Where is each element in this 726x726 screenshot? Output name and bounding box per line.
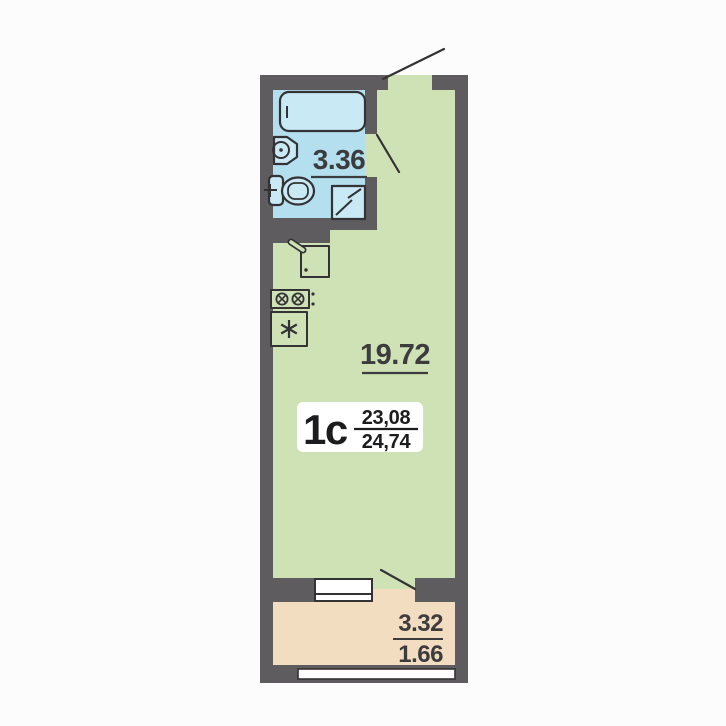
shower-icon xyxy=(332,186,365,219)
fridge-icon xyxy=(271,312,307,346)
wall-top xyxy=(260,75,388,90)
bathtub-outline xyxy=(280,92,365,131)
unit-area-reduced: 24,74 xyxy=(362,431,412,453)
balcony-reduced-area-label: 1.66 xyxy=(398,641,443,668)
entrance-opening-floor xyxy=(388,75,432,90)
balcony-door-opening-room-side xyxy=(373,578,415,589)
living-area-label: 19.72 xyxy=(360,339,430,371)
unit-type-label: 1с xyxy=(303,406,348,453)
unit-label-card: 1с 23,08 24,74 xyxy=(297,402,423,453)
bathroom-area-label: 3.36 xyxy=(313,144,366,175)
counter-dot-bottom xyxy=(311,302,314,305)
balcony-door-opening xyxy=(373,578,415,602)
unit-area-total: 23,08 xyxy=(362,407,411,429)
toilet-bowl xyxy=(282,178,314,205)
wall-bathroom-bottom-thick xyxy=(260,218,330,243)
sink-faucet-dot xyxy=(279,148,283,152)
wall-top-right-stub xyxy=(432,75,462,90)
counter-dot-top xyxy=(311,292,314,295)
wall-right xyxy=(455,75,468,683)
kitchen-sink-drain-dot xyxy=(304,268,307,271)
sink-icon xyxy=(273,137,297,164)
toilet-icon xyxy=(264,176,314,205)
floor-plan: 3.36 19.72 3.32 1.66 1с 23,08 24,74 xyxy=(0,0,726,726)
wall-bathroom-right-upper xyxy=(365,88,377,134)
balcony-window xyxy=(315,579,372,601)
balcony-area-label: 3.32 xyxy=(398,610,443,637)
stove-icon xyxy=(271,290,315,308)
bathtub-icon xyxy=(280,92,365,131)
balcony-glazing xyxy=(298,669,455,679)
sink-outline xyxy=(274,137,297,164)
floor-plan-svg: 3.36 19.72 3.32 1.66 1с 23,08 24,74 xyxy=(0,0,726,726)
balcony-door-opening-balcony-side xyxy=(373,589,415,602)
